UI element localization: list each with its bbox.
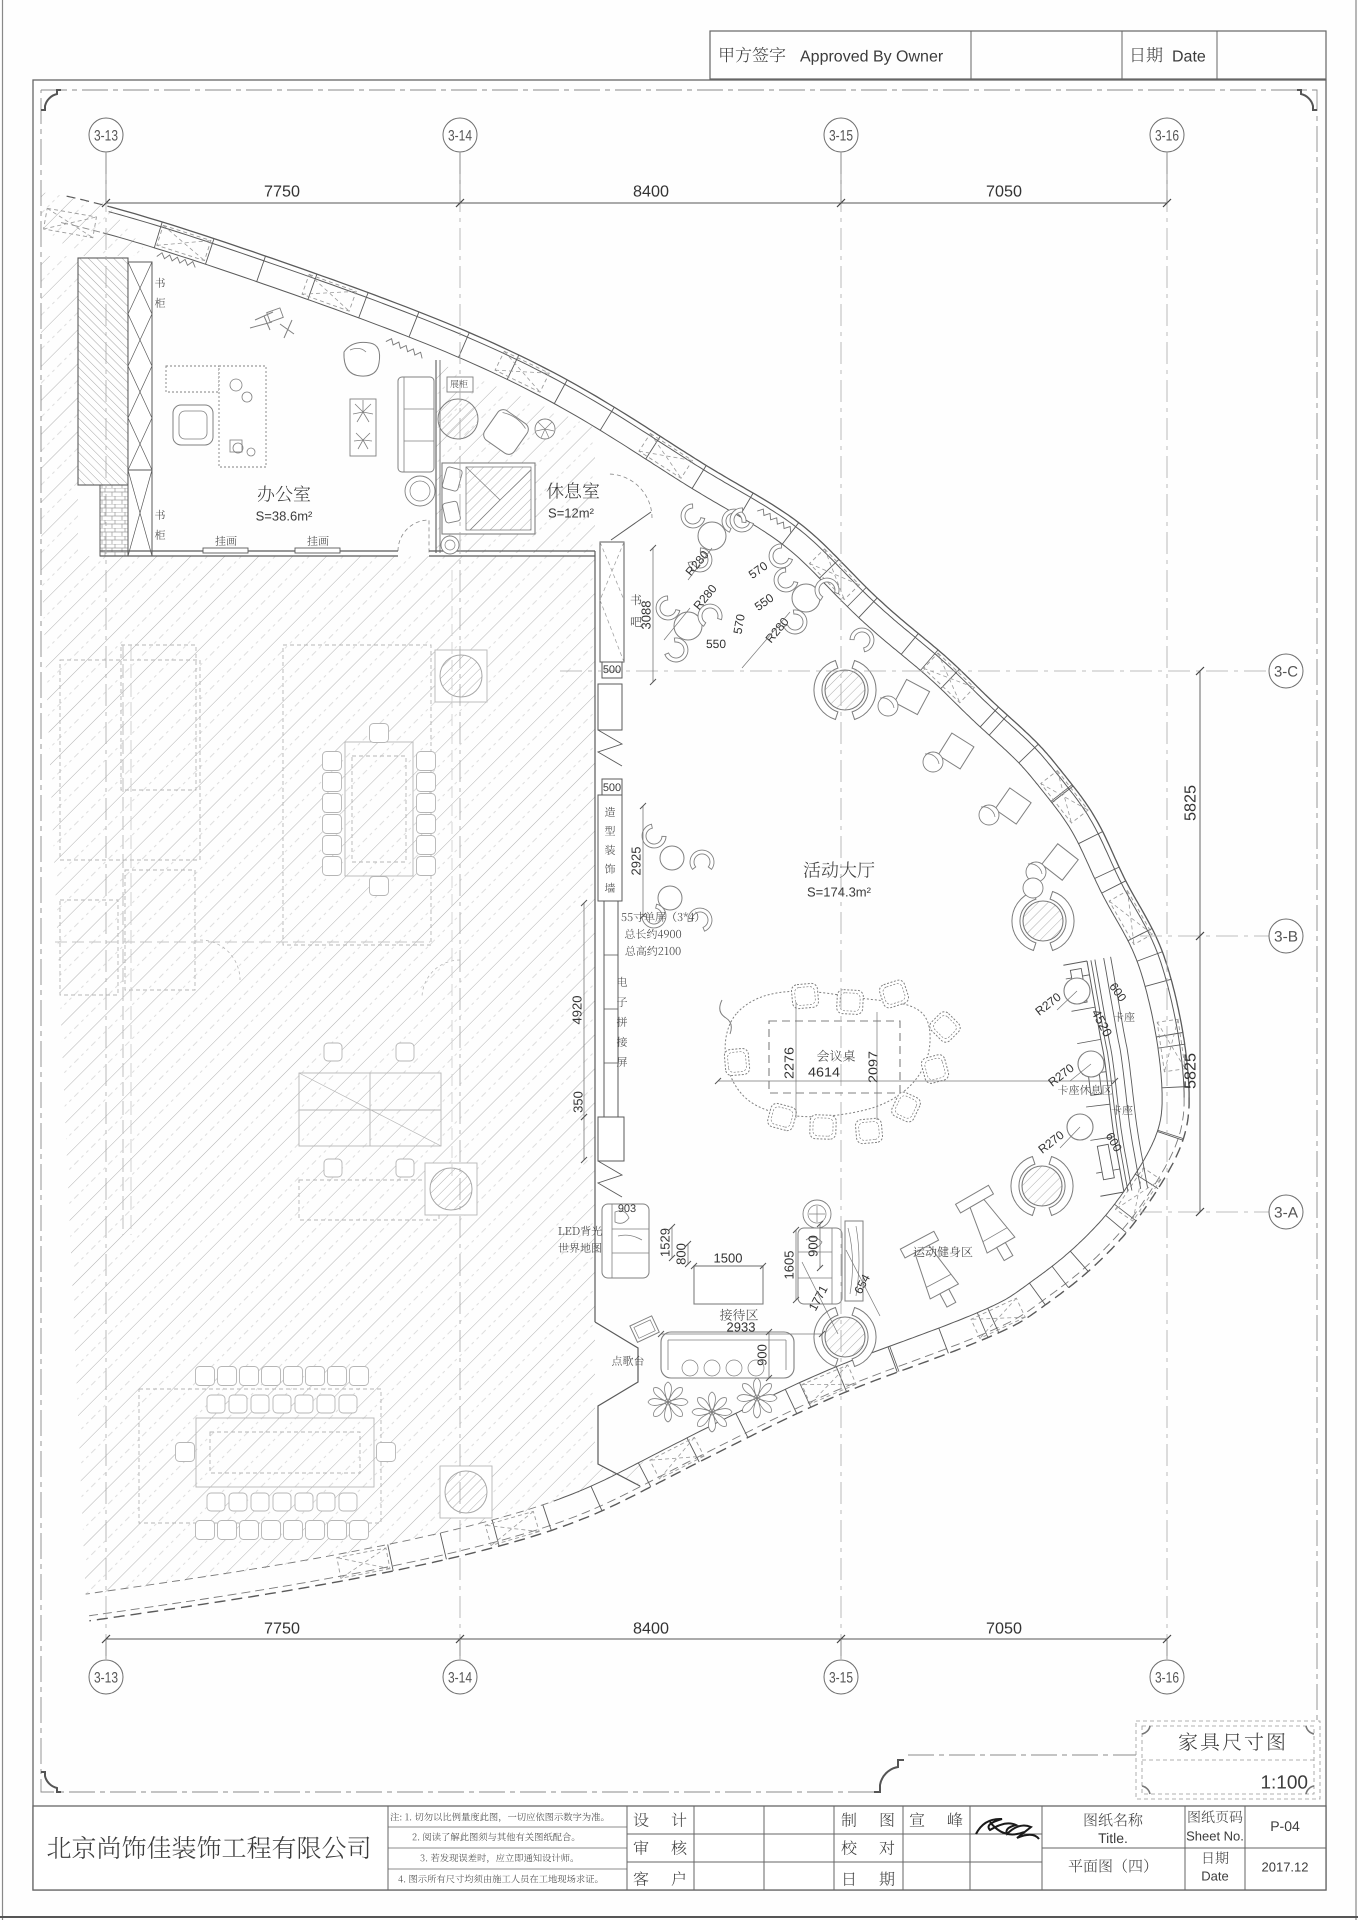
svg-text:900: 900 [755, 1344, 770, 1366]
svg-text:3-C: 3-C [1274, 663, 1298, 680]
svg-text:2276: 2276 [782, 1047, 797, 1079]
svg-text:Date: Date [1201, 1869, 1228, 1884]
svg-text:3-13: 3-13 [94, 127, 118, 144]
svg-text:8400: 8400 [633, 184, 669, 201]
svg-text:3-A: 3-A [1274, 1204, 1298, 1221]
svg-text:7750: 7750 [264, 184, 300, 201]
svg-text:4614: 4614 [808, 1065, 840, 1080]
svg-text:500: 500 [603, 664, 621, 676]
svg-text:2017.12: 2017.12 [1262, 1860, 1309, 1875]
svg-text:1:100: 1:100 [1260, 1773, 1308, 1794]
svg-text:2925: 2925 [629, 847, 644, 876]
svg-text:1529: 1529 [658, 1228, 673, 1257]
svg-text:3-15: 3-15 [829, 127, 853, 144]
svg-text:550: 550 [706, 637, 726, 651]
svg-text:P-04: P-04 [1270, 1818, 1300, 1834]
svg-text:7050: 7050 [986, 1621, 1022, 1638]
svg-text:Approved By Owner: Approved By Owner [800, 49, 944, 66]
svg-text:3-14: 3-14 [448, 1669, 472, 1686]
svg-text:7750: 7750 [264, 1621, 300, 1638]
svg-text:S=174.3m²: S=174.3m² [807, 885, 872, 900]
svg-text:3-B: 3-B [1274, 928, 1298, 945]
svg-text:1605: 1605 [782, 1251, 797, 1280]
svg-text:5825: 5825 [1183, 785, 1200, 821]
svg-text:2933: 2933 [727, 1320, 756, 1335]
svg-text:Sheet No.: Sheet No. [1186, 1829, 1244, 1844]
svg-text:S=12m²: S=12m² [548, 506, 595, 521]
svg-text:5825: 5825 [1183, 1053, 1200, 1089]
svg-text:903: 903 [618, 1203, 636, 1215]
svg-text:3-16: 3-16 [1155, 127, 1179, 144]
svg-text:3-13: 3-13 [94, 1669, 118, 1686]
svg-text:Title.: Title. [1098, 1830, 1128, 1846]
svg-text:8400: 8400 [633, 1621, 669, 1638]
svg-text:4920: 4920 [570, 996, 585, 1025]
svg-text:7050: 7050 [986, 184, 1022, 201]
svg-text:3-16: 3-16 [1155, 1669, 1179, 1686]
svg-text:3088: 3088 [639, 601, 654, 630]
svg-text:1500: 1500 [714, 1251, 743, 1266]
svg-text:350: 350 [571, 1091, 586, 1113]
svg-text:800: 800 [674, 1243, 689, 1265]
svg-text:3-14: 3-14 [448, 127, 472, 144]
svg-text:3-15: 3-15 [829, 1669, 853, 1686]
svg-text:2097: 2097 [866, 1051, 881, 1083]
svg-text:900: 900 [806, 1235, 821, 1257]
svg-text:Date: Date [1172, 49, 1206, 66]
svg-text:500: 500 [603, 782, 621, 794]
svg-text:S=38.6m²: S=38.6m² [256, 509, 313, 524]
